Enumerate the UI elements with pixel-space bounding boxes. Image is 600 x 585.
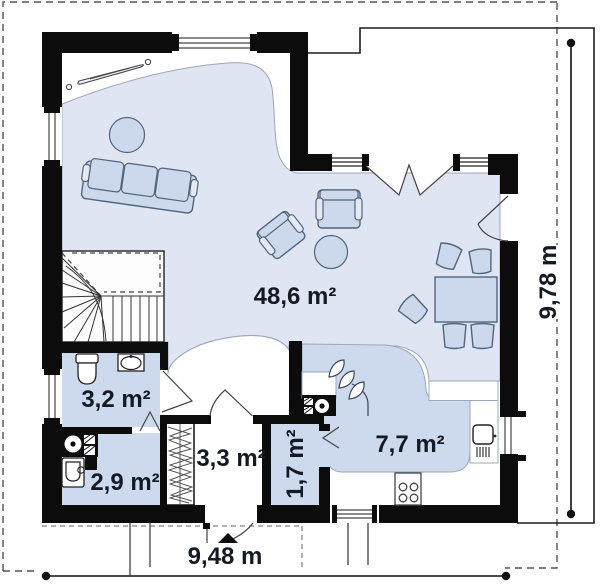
svg-text:1,7 m²: 1,7 m²: [282, 429, 309, 498]
svg-text:3,3 m²: 3,3 m²: [196, 445, 265, 472]
svg-text:2,9 m²: 2,9 m²: [90, 469, 159, 496]
svg-text:9,78 m: 9,78 m: [535, 245, 562, 320]
svg-text:48,6 m²: 48,6 m²: [254, 283, 337, 310]
svg-text:3,2 m²: 3,2 m²: [81, 386, 150, 413]
svg-text:7,7 m²: 7,7 m²: [375, 431, 444, 458]
svg-text:9,48 m: 9,48 m: [188, 543, 263, 570]
